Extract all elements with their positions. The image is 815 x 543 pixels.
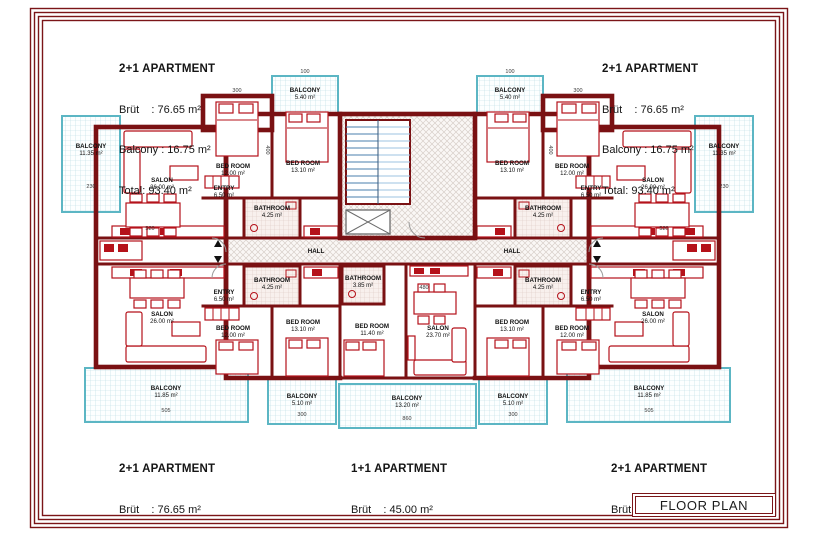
floor-plan-title: FLOOR PLAN [660,498,748,513]
room-label: BED ROOM12.00 m² [216,163,250,177]
apartment-balcony: Balcony : 16.75 m² [602,144,698,158]
apartment-title: 2+1 APARTMENT [119,463,215,477]
apartment-title: 2+1 APARTMENT [602,63,698,77]
dimension-label: 300 [297,412,306,418]
dimension-label: 400 [264,145,270,154]
dimension-label: 100 [300,69,309,75]
kitchen-counter [410,266,468,276]
room-label: BED ROOM13.10 m² [495,319,529,333]
room-label: BED ROOM12.00 m² [555,163,589,177]
room-label: BED ROOM13.10 m² [286,319,320,333]
room-label: SALON26.00 m² [641,311,665,325]
apartment-balcony: Balcony : 16.75 m² [119,144,215,158]
apartment-brut: Brüt : 76.65 m² [119,104,215,118]
room-label: HALL [308,248,325,255]
room-label: ENTRY6.50 m² [581,289,603,303]
dimension-label: 860 [402,416,411,422]
apartment-title: 1+1 APARTMENT [351,463,447,477]
apartment-brut: Brüt : 45.00 m² [351,504,447,518]
room-label: ENTRY6.50 m² [581,185,603,199]
dimension-label: 520 [659,226,668,232]
balcony-area [62,116,120,212]
center-core-and-1plus1 [339,114,476,428]
room-label: SALON23.70 m² [426,325,450,339]
apartment-total: Total: 93.40 m² [602,185,698,199]
dimension-label: 505 [644,408,653,414]
room-label: HALL [504,248,521,255]
entry-arrow-down [214,256,222,263]
bed [216,102,258,156]
dimension-label: 230 [86,184,95,190]
dining-table [130,270,184,308]
room-label: SALON26.00 m² [150,311,174,325]
room-label: BED ROOM13.10 m² [495,160,529,174]
apartment-spec-bottom-right: 2+1 APARTMENT Brüt : 76.65 m² Balcony : … [611,436,707,543]
apartment-spec-bottom-left: 2+1 APARTMENT Brüt : 76.65 m² Balcony : … [119,436,215,543]
room-label: BED ROOM13.10 m² [286,160,320,174]
dimension-label: 505 [161,408,170,414]
apartment-brut: Brüt : 76.65 m² [119,504,215,518]
dimension-label: 480 [419,285,428,291]
dimension-label: 300 [508,412,517,418]
bed [286,338,328,376]
dimension-label: 520 [145,226,154,232]
room-label: BED ROOM12.00 m² [216,325,250,339]
dimension-label: 100 [505,69,514,75]
bed [286,112,328,162]
corridor-hall-floor [228,240,587,262]
room-label: BED ROOM12.00 m² [555,325,589,339]
room-label: BED ROOM11.40 m² [355,323,389,337]
floor-plan-title-box: FLOOR PLAN [632,493,776,517]
staircase [346,120,410,204]
floor-plan-page: 3003001001002302305205204805055053003008… [0,0,815,543]
apartment-spec-top-right: 2+1 APARTMENT Brüt : 76.65 m² Balcony : … [602,36,698,225]
apartment-title: 2+1 APARTMENT [119,63,215,77]
apartment-title: 2+1 APARTMENT [611,463,707,477]
apartment-brut: Brüt : 76.65 m² [602,104,698,118]
dimension-label: 230 [719,184,728,190]
bed [216,340,258,374]
apartment-spec-top-left: 2+1 APARTMENT Brüt : 76.65 m² Balcony : … [119,36,215,225]
dimension-label: 300 [232,88,241,94]
bed [344,340,384,376]
apartment-total: Total: 93.40 m² [119,185,215,199]
dimension-label: 300 [573,88,582,94]
dimension-label: 400 [547,145,553,154]
apartment-spec-bottom-center: 1+1 APARTMENT Brüt : 45.00 m² Balcony : … [351,436,447,543]
elevator [346,210,390,234]
